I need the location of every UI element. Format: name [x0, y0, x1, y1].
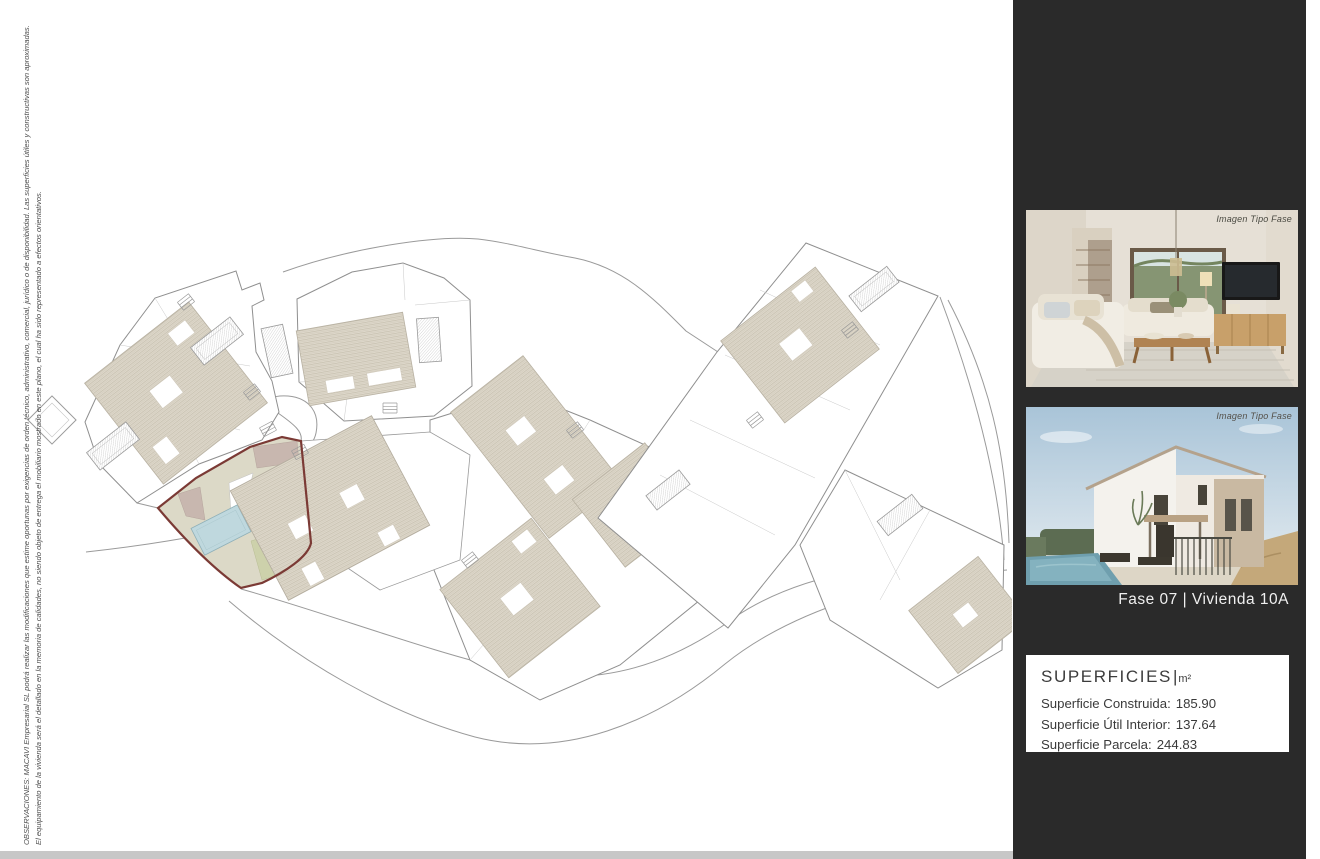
superficie-parcela-label: Superficie Parcela: — [1041, 737, 1152, 752]
bottom-gray-bar — [0, 851, 1013, 859]
superficie-construida-label: Superficie Construida: — [1041, 696, 1171, 711]
road-right-boundary-b — [948, 300, 1009, 543]
superficie-util-value: 137.64 — [1176, 717, 1216, 732]
cluster-bottom-right — [800, 470, 1012, 688]
disclaimer-vertical-text: OBSERVACIONES: MACAVI Empresarial SL pod… — [21, 0, 47, 859]
pool — [416, 317, 441, 362]
phase-unit-caption: Fase 07 | Vivienda 10A — [1118, 591, 1289, 609]
superficie-parcela-value: 244.83 — [1157, 737, 1197, 752]
superficies-unit: m² — [1178, 673, 1191, 685]
site-plan-svg — [0, 0, 1012, 851]
superficie-construida-row: Superficie Construida:185.90 — [1041, 694, 1279, 715]
disclaimer-line-2: El equipamiento de la vivienda será el d… — [33, 7, 45, 845]
disclaimer-line-1: OBSERVACIONES: MACAVI Empresarial SL pod… — [21, 7, 33, 845]
cluster-center — [261, 263, 472, 421]
superficies-separator: | — [1173, 667, 1177, 686]
photo-villa-exterior: Imagen Tipo Fase — [1026, 407, 1298, 585]
superficie-parcela-row: Superficie Parcela:244.83 — [1041, 735, 1279, 756]
superficies-box: SUPERFICIES|m² Superficie Construida:185… — [1026, 655, 1289, 752]
photo-label: Imagen Tipo Fase — [1216, 214, 1292, 224]
superficie-util-row: Superficie Útil Interior:137.64 — [1041, 715, 1279, 736]
superficie-construida-value: 185.90 — [1176, 696, 1216, 711]
photo-living-room: Imagen Tipo Fase — [1026, 210, 1298, 387]
superficies-title: SUPERFICIES — [1041, 667, 1172, 686]
superficie-util-label: Superficie Útil Interior: — [1041, 717, 1171, 732]
superficies-title-row: SUPERFICIES|m² — [1041, 667, 1279, 687]
sidebar-panel: Imagen Tipo Fase — [1013, 0, 1306, 859]
plan-sheet: OBSERVACIONES: MACAVI Empresarial SL pod… — [0, 0, 1013, 859]
right-white-margin — [1306, 0, 1320, 859]
photo-label: Imagen Tipo Fase — [1216, 411, 1292, 421]
